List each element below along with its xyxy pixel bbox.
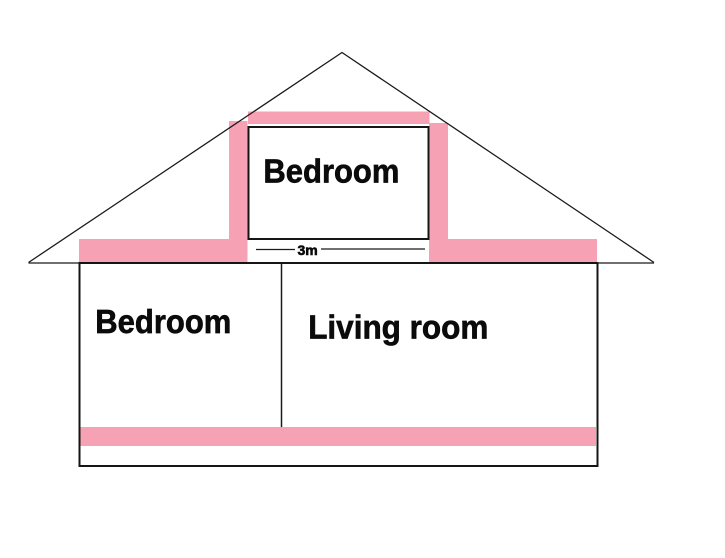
svg-text:Bedroom: Bedroom [95,303,231,340]
svg-text:3m: 3m [298,242,318,258]
svg-text:Living room: Living room [308,309,488,346]
svg-text:Bedroom: Bedroom [263,152,399,189]
